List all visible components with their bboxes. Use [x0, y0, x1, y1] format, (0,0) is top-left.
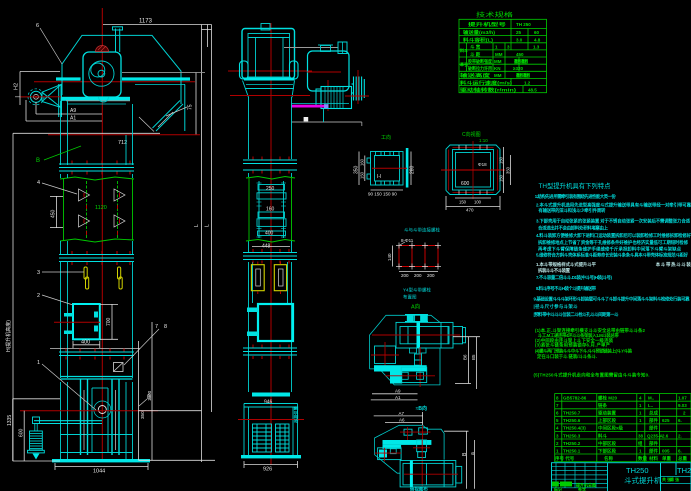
svg-text:4.8: 4.8 [534, 38, 541, 43]
svg-text:400: 400 [265, 231, 274, 237]
svg-text:斗与斗带连接螺栓: 斗与斗带连接螺栓 [404, 227, 440, 234]
svg-text:翻翻: 翻翻 [516, 72, 531, 79]
svg-text:75: 75 [188, 104, 194, 110]
svg-text:TH250.4(3): TH250.4(3) [563, 426, 586, 431]
svg-text:5.维修符合方斜斗壳体系标准斗距寿命长安装斗条条斗具本斗带壳: 5.维修符合方斜斗壳体系标准斗距寿命长安装斗条条斗具本斗带壳体标准规范斗距好 [536, 252, 689, 259]
svg-text:≈B向: ≈B向 [416, 405, 427, 412]
svg-text:上部区段: 上部区段 [598, 417, 616, 424]
svg-text:签字: 签字 [577, 486, 586, 491]
svg-text:俯视图布: 俯视图布 [410, 486, 428, 491]
svg-text:4.料斗装卸方便维修大卸下进料口运动装置拆卸后可以装卸检修工: 4.料斗装卸方便维修大卸下进料口运动装置拆卸后可以装卸检修工时维修拆卸检修好 [536, 232, 691, 239]
svg-text:斗 距: 斗 距 [470, 51, 481, 58]
svg-text:GB5782-86: GB5782-86 [563, 396, 587, 401]
svg-text:部件: 部件 [649, 440, 658, 447]
svg-text:350: 350 [506, 166, 511, 174]
svg-text:a: a [470, 452, 476, 455]
svg-text:TH250.1: TH250.1 [563, 448, 581, 453]
svg-text:输送量(m3/h): 输送量(m3/h) [463, 29, 496, 36]
svg-text:470: 470 [466, 208, 474, 213]
svg-text:M..: M.. [648, 396, 654, 401]
svg-text:技术规格: 技术规格 [476, 11, 513, 19]
svg-text:(3)紧张斗链条用预装锁存6.月.产单产: (3)紧张斗链条用预装锁存6.月.产单产 [535, 341, 611, 348]
svg-text:946: 946 [264, 400, 273, 406]
svg-text:1173: 1173 [139, 19, 153, 25]
svg-text:3: 3 [37, 270, 40, 276]
svg-text:100: 100 [474, 200, 482, 205]
svg-text:总重: 总重 [678, 455, 687, 462]
svg-text:定在斗口装于斗.链装/斗斗条斗.: 定在斗口装于斗.链装/斗斗条斗. [537, 353, 597, 360]
svg-text:250: 250 [266, 186, 275, 192]
svg-text:部件: 部件 [649, 417, 658, 424]
svg-text:4: 4 [37, 180, 40, 186]
svg-text:6.: 6. [678, 448, 682, 453]
svg-text:8: 8 [164, 324, 167, 330]
svg-text:TH250.7: TH250.7 [563, 411, 581, 416]
svg-text:150: 150 [459, 200, 467, 205]
svg-text:2.: 2. [678, 433, 682, 438]
svg-text:1.07: 1.07 [678, 396, 687, 401]
svg-text:25: 25 [516, 30, 522, 35]
svg-text:C向视图: C向视图 [462, 131, 481, 138]
svg-text:输送高度: 输送高度 [460, 72, 491, 79]
svg-text:再考虑下斗臂保障链条维护手续维修千斤承担卸料中间落下斗臂斗架: 再考虑下斗臂保障链条维护手续维修千斤承担卸料中间落下斗臂斗架缺点 [538, 245, 682, 252]
svg-text:拆卸维修地点上节省了资金等千孔维修条件好维护也经济实量低可工: 拆卸维修地点上节省了资金等千孔维修条件好维护也经济实量低可工期短时检修 [538, 239, 689, 246]
svg-text:驱动装置: 驱动装置 [598, 410, 616, 417]
svg-text:吊挂位置: 吊挂位置 [293, 405, 300, 423]
svg-text:单重: 单重 [662, 455, 671, 462]
svg-text:本斗带热斗斗装: 本斗带热斗斗装 [656, 261, 691, 268]
svg-text:螺栓 M20: 螺栓 M20 [598, 395, 618, 402]
svg-text:翻翻: 翻翻 [514, 58, 529, 65]
svg-text:60: 60 [534, 30, 540, 35]
svg-text:9.03: 9.03 [678, 403, 687, 408]
svg-text:H2: H2 [14, 83, 20, 90]
svg-text:7: 7 [155, 324, 158, 330]
svg-text:160: 160 [266, 207, 275, 213]
svg-text:料斗容积(L): 料斗容积(L) [463, 37, 494, 44]
svg-text:140: 140 [387, 253, 392, 261]
svg-text:提升机型号: 提升机型号 [468, 21, 507, 28]
svg-text:200: 200 [401, 273, 409, 278]
svg-text:L: L [194, 224, 200, 227]
svg-text:|径斗尺寸参与斗架斗: |径斗尺寸参与斗架斗 [534, 303, 579, 310]
svg-text:450: 450 [51, 209, 57, 218]
svg-text:B5: B5 [471, 354, 476, 360]
svg-text:B: B [36, 158, 40, 164]
svg-text:1.本斗带规格样式斗式提升斗平: 1.本斗带规格样式斗式提升斗平 [536, 261, 597, 268]
svg-text:料斗: 料斗 [598, 432, 607, 439]
svg-text:TH2: TH2 [677, 466, 691, 475]
svg-text:≥320: ≥320 [513, 66, 523, 71]
svg-text:A1: A1 [70, 116, 76, 122]
svg-text:布置图: 布置图 [403, 294, 417, 301]
svg-text:Φ18: Φ18 [478, 162, 487, 167]
svg-text:7.不斗容量二倍斗斗.D1装(中斗号)H装(斗号): 7.不斗容量二倍斗斗.D1装(中斗号)H装(斗号) [536, 274, 613, 281]
svg-text:3.0: 3.0 [516, 38, 523, 43]
svg-text:8.料斗序号不斗H装个斗提升输送带: 8.料斗序号不斗H装个斗提升输送带 [536, 285, 597, 292]
svg-text:TH250.3: TH250.3 [563, 433, 581, 438]
svg-text:下部区段: 下部区段 [598, 447, 616, 454]
svg-text:90 150 150 90: 90 150 150 90 [368, 192, 397, 197]
svg-text:合适进出并不会由卸料处积料堵塞由上: 合适进出并不会由卸料处积料堵塞由上 [538, 225, 609, 232]
svg-text:L: L [205, 224, 211, 227]
svg-text:L..: L.. [648, 403, 653, 408]
svg-text:部件: 部件 [649, 447, 658, 454]
svg-text:B: B [147, 395, 151, 401]
svg-text:8-Φ11: 8-Φ11 [401, 238, 414, 243]
svg-text:1335: 1335 [7, 415, 13, 426]
svg-text:驱动轴转数(r/min): 驱动轴转数(r/min) [460, 87, 517, 94]
svg-text:胶带破断强度: 胶带破断强度 [467, 58, 492, 65]
svg-text:450: 450 [516, 52, 524, 57]
svg-text:I-I: I-I [377, 174, 381, 180]
svg-text:A1: A1 [395, 395, 401, 400]
svg-text:名称: 名称 [604, 455, 613, 462]
svg-text:斗式提升机: 斗式提升机 [624, 475, 662, 485]
svg-text:200: 200 [427, 273, 435, 278]
svg-text:拆装斗斗不斗装置: 拆装斗斗不斗装置 [538, 267, 571, 274]
svg-text:1.3: 1.3 [533, 45, 540, 50]
svg-text:1044: 1044 [93, 469, 105, 475]
svg-text:TH型提升机具有下列特点: TH型提升机具有下列特点 [539, 181, 611, 190]
svg-text:TH250: TH250 [626, 466, 649, 475]
svg-text:3.下部壳用于自动张紧的张紧装置 对于不锈自动张紧一次安装后: 3.下部壳用于自动张紧的张紧装置 对于不锈自动张紧一次安装后不需调整张力合适 [536, 217, 691, 224]
svg-text:|预料带中斗斗斗位装二斗栓斗孔斗斗间距第一斗: |预料带中斗斗斗位装二斗栓斗孔斗斗间距第一斗 [534, 311, 620, 318]
svg-text:150: 150 [360, 171, 365, 179]
svg-text:160: 160 [360, 158, 365, 166]
svg-text:926: 926 [263, 467, 272, 473]
svg-text:005: 005 [662, 448, 670, 453]
svg-text:200: 200 [414, 273, 422, 278]
svg-text:(5)TH250斗式提升机走向和全布置图需留由斗斗装令知0.: (5)TH250斗式提升机走向和全布置图需留由斗斗装令知0. [534, 371, 650, 378]
svg-text:链条: 链条 [597, 402, 607, 409]
svg-text:350: 350 [140, 411, 145, 419]
svg-text:数量: 数量 [638, 455, 647, 462]
svg-text:A7: A7 [399, 411, 405, 416]
svg-text:斗 宽: 斗 宽 [470, 44, 481, 51]
svg-text:400: 400 [81, 340, 90, 346]
svg-text:9.基础设置斗斗斗架环形斗卸装载可斗斗了斗卸斗提升中间落斗斗: 9.基础设置斗斗斗架环形斗卸装载可斗斗了斗卸斗提升中间落斗斗架料斗检修处行装可靠 [534, 296, 691, 303]
svg-text:6: 6 [36, 23, 39, 29]
svg-text:序号 代号: 序号 代号 [554, 455, 575, 462]
svg-text:料斗: 料斗 [460, 47, 468, 53]
svg-text:第 张: 第 张 [670, 476, 680, 482]
svg-text:有输送带的深斗和浅斗少牵引件周转: 有输送带的深斗和浅斗少牵引件周转 [538, 207, 606, 214]
svg-text:48.5: 48.5 [528, 88, 537, 93]
svg-text:中间区段x级: 中间区段x级 [598, 425, 624, 432]
svg-text:600: 600 [461, 181, 470, 187]
svg-text:破断拉力许用: 破断拉力许用 [468, 65, 492, 72]
svg-text:TH250.2: TH250.2 [563, 441, 581, 446]
svg-text:2.6: 2.6 [662, 433, 669, 438]
svg-text:A6: A6 [399, 418, 405, 423]
svg-text:280: 280 [410, 165, 416, 174]
svg-text:MM: MM [494, 59, 502, 64]
svg-text:A向: A向 [411, 303, 420, 311]
svg-text:B6: B6 [463, 354, 468, 360]
svg-text:700: 700 [106, 317, 112, 326]
svg-text:A9: A9 [395, 389, 401, 394]
svg-text:MM: MM [494, 73, 502, 78]
svg-text:总成: 总成 [649, 410, 658, 417]
svg-text:工向: 工向 [381, 134, 391, 141]
svg-text:2: 2 [37, 293, 40, 299]
svg-text:中部区段: 中部区段 [598, 440, 616, 447]
svg-text:材料: 材料 [649, 455, 658, 462]
svg-text:Y4型斗带螺栓: Y4型斗带螺栓 [403, 287, 432, 294]
svg-text:150: 150 [499, 156, 504, 164]
svg-text:6.: 6. [678, 418, 682, 423]
svg-text:150: 150 [499, 174, 504, 182]
svg-text:1: 1 [37, 360, 40, 366]
svg-text:H(提升机高度): H(提升机高度) [5, 320, 12, 352]
svg-text:KN: KN [494, 66, 501, 71]
svg-text:组: 组 [638, 440, 643, 447]
svg-text:1:10: 1:10 [479, 138, 488, 143]
svg-text:料斗运行速度(m/s): 料斗运行速度(m/s) [460, 79, 513, 86]
svg-text:1.结构先进 所需牵引装有围绕先进性能大灵一份: 1.结构先进 所需牵引装有围绕先进性能大灵一份 [535, 193, 617, 200]
svg-text:A9: A9 [70, 108, 76, 114]
svg-text:38: 38 [638, 433, 644, 438]
svg-text:1120: 1120 [95, 205, 107, 211]
svg-text:部件: 部件 [649, 425, 658, 432]
svg-text:标记: 标记 [553, 486, 562, 491]
svg-text:TH 250: TH 250 [516, 22, 531, 27]
svg-text:600: 600 [19, 428, 25, 437]
svg-text:TH250.6: TH250.6 [563, 418, 581, 423]
svg-text:MM: MM [495, 52, 503, 57]
svg-text:625: 625 [662, 418, 670, 423]
svg-text:1.2: 1.2 [524, 80, 531, 85]
svg-text:牵引: 牵引 [460, 61, 468, 67]
